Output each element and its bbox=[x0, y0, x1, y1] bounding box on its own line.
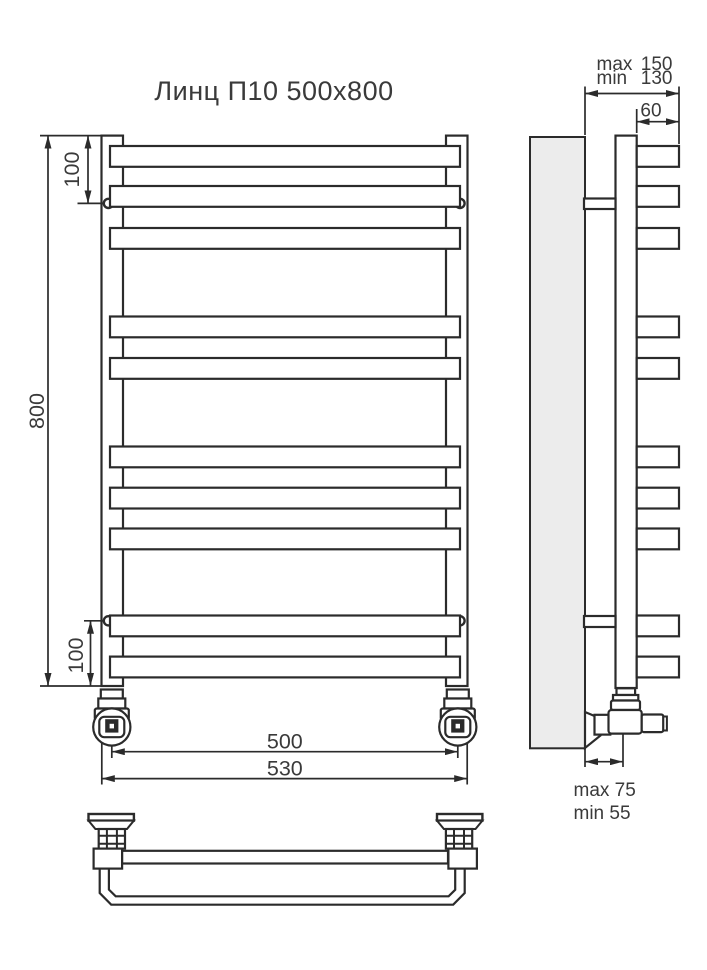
front-bar bbox=[110, 616, 460, 637]
bottom-loop-inner bbox=[109, 869, 455, 897]
dim-label-800: 800 bbox=[25, 393, 49, 429]
valve-outlet-cap bbox=[663, 717, 667, 731]
bottom-bracket-left bbox=[89, 814, 134, 849]
dim-500: 500 bbox=[112, 730, 458, 754]
wall bbox=[530, 137, 585, 748]
wall-bracket-bottom bbox=[584, 616, 616, 627]
dim-label-500: 500 bbox=[267, 730, 303, 754]
towel-rail-drawing: Линц П10 500х800 bbox=[0, 0, 707, 970]
bottom-rail bbox=[122, 851, 448, 864]
side-bar bbox=[637, 657, 679, 678]
valve-front-right bbox=[439, 690, 476, 746]
side-bar bbox=[637, 146, 679, 167]
side-bar bbox=[637, 488, 679, 509]
side-bar bbox=[637, 317, 679, 338]
valve-body bbox=[609, 710, 642, 734]
bottom-block-left bbox=[94, 849, 123, 869]
front-bar bbox=[110, 317, 460, 338]
front-bar bbox=[110, 146, 460, 167]
front-view: 800 100 100 500 530 bbox=[25, 136, 476, 785]
side-valve bbox=[585, 688, 667, 748]
front-bar bbox=[110, 529, 460, 550]
side-bar bbox=[637, 447, 679, 468]
side-bar bbox=[637, 529, 679, 550]
side-view: max 150 min 130 60 max 75 min 55 bbox=[530, 54, 679, 824]
side-bar bbox=[637, 186, 679, 207]
dim-wall-clearance: max 150 min 130 bbox=[585, 54, 679, 94]
bottom-loop-outer bbox=[100, 869, 465, 905]
valve-collar-3 bbox=[611, 701, 640, 711]
front-bar bbox=[110, 186, 460, 207]
dim-label-100-top: 100 bbox=[60, 152, 84, 188]
bottom-view bbox=[89, 814, 483, 905]
drawing-title: Линц П10 500х800 bbox=[154, 76, 393, 106]
front-bars bbox=[110, 146, 460, 677]
side-pipe bbox=[616, 136, 637, 688]
dim-label-530: 530 bbox=[267, 756, 303, 780]
side-bars bbox=[637, 146, 679, 677]
wall-bracket-top bbox=[584, 199, 616, 210]
front-bar bbox=[110, 657, 460, 678]
dim-label-valve-max: max 75 bbox=[574, 780, 636, 801]
dim-value-wall-min: 130 bbox=[641, 68, 673, 89]
dim-label-60: 60 bbox=[640, 101, 661, 122]
dim-label-100-bottom: 100 bbox=[64, 638, 88, 674]
valve-front-left bbox=[93, 690, 130, 746]
front-bar bbox=[110, 488, 460, 509]
dim-100-bottom: 100 bbox=[64, 621, 104, 686]
dim-100-top: 100 bbox=[60, 136, 104, 204]
front-riser-left bbox=[102, 136, 124, 686]
dim-label-valve-min: min 55 bbox=[574, 803, 631, 824]
dim-bar-depth: 60 bbox=[637, 101, 679, 122]
bottom-block-right bbox=[448, 849, 477, 869]
side-bar bbox=[637, 228, 679, 249]
valve-outlet bbox=[642, 715, 664, 733]
dim-530: 530 bbox=[102, 756, 467, 780]
front-bar bbox=[110, 228, 460, 249]
front-bar bbox=[110, 358, 460, 379]
dim-label-wall-min: min bbox=[597, 68, 628, 89]
technical-drawing-page: Линц П10 500х800 bbox=[0, 0, 707, 970]
front-riser-right bbox=[446, 136, 468, 686]
side-bar bbox=[637, 616, 679, 637]
front-bar bbox=[110, 447, 460, 468]
side-bar bbox=[637, 358, 679, 379]
bottom-bracket-right bbox=[437, 814, 482, 849]
